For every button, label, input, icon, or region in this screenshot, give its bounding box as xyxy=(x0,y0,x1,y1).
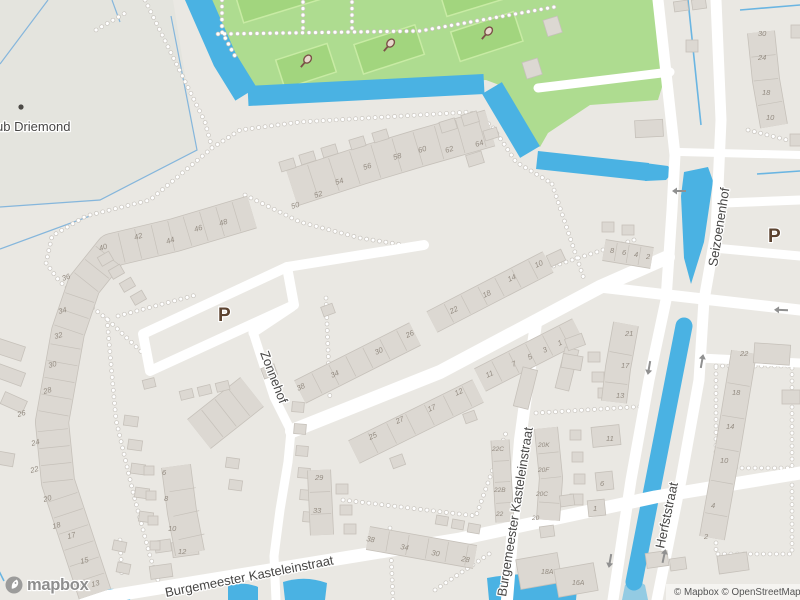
svg-text:18: 18 xyxy=(732,388,741,397)
svg-text:14: 14 xyxy=(726,422,734,431)
svg-text:13: 13 xyxy=(616,391,625,400)
svg-text:P: P xyxy=(768,226,781,247)
svg-text:2: 2 xyxy=(645,252,651,261)
svg-text:18: 18 xyxy=(762,88,771,97)
svg-text:1: 1 xyxy=(593,504,597,513)
svg-text:mapbox: mapbox xyxy=(27,576,90,594)
svg-text:11: 11 xyxy=(606,434,614,443)
svg-text:33: 33 xyxy=(313,506,322,515)
svg-text:10: 10 xyxy=(168,524,177,533)
svg-text:2: 2 xyxy=(703,532,709,541)
svg-text:20K: 20K xyxy=(537,442,550,449)
svg-text:18A: 18A xyxy=(541,569,554,576)
svg-text:© Mapbox © OpenStreetMap: © Mapbox © OpenStreetMap xyxy=(674,587,800,598)
svg-text:29: 29 xyxy=(314,473,324,482)
svg-text:4: 4 xyxy=(634,250,638,259)
svg-text:17: 17 xyxy=(621,361,630,370)
svg-text:ub Driemond: ub Driemond xyxy=(0,119,70,134)
svg-text:30: 30 xyxy=(758,29,767,38)
svg-text:20: 20 xyxy=(531,515,540,522)
svg-text:22: 22 xyxy=(495,511,504,518)
svg-text:16A: 16A xyxy=(572,580,585,587)
svg-text:20F: 20F xyxy=(537,467,550,474)
svg-text:22B: 22B xyxy=(493,487,506,494)
svg-text:21: 21 xyxy=(624,329,633,338)
svg-text:22: 22 xyxy=(739,349,749,358)
svg-text:10: 10 xyxy=(720,456,729,465)
svg-text:P: P xyxy=(218,305,231,326)
svg-text:12: 12 xyxy=(178,547,187,556)
svg-text:34: 34 xyxy=(400,542,410,552)
svg-text:20C: 20C xyxy=(535,491,548,498)
svg-text:10: 10 xyxy=(766,113,775,122)
svg-text:22C: 22C xyxy=(491,446,504,453)
svg-text:24: 24 xyxy=(757,53,766,62)
svg-text:4: 4 xyxy=(711,501,715,510)
